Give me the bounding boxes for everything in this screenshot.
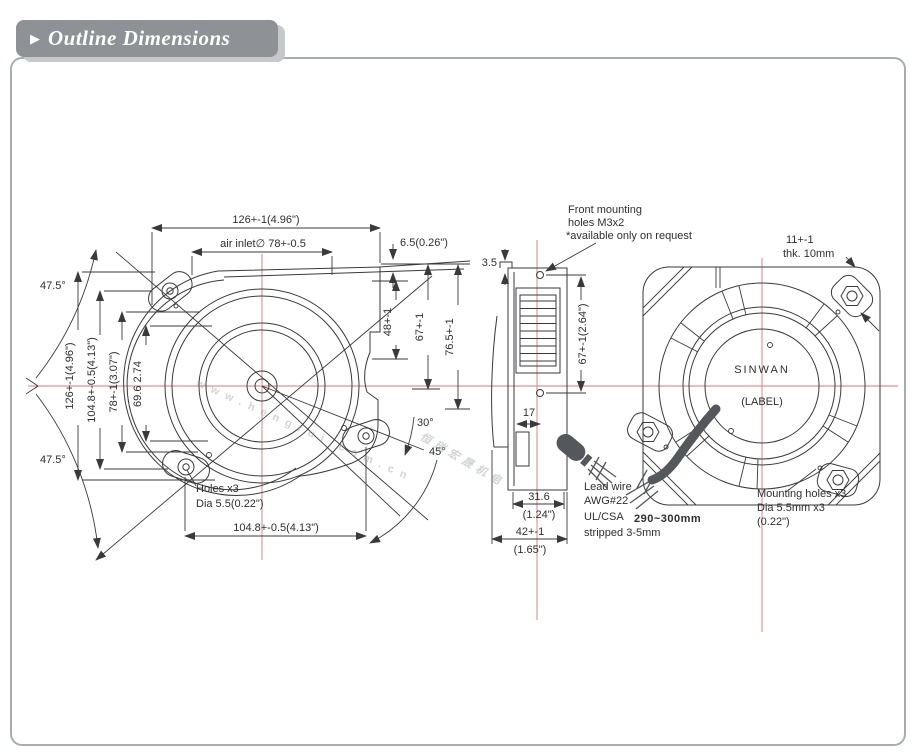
dim-outlet-in: (1.24") xyxy=(523,509,556,521)
note-lead-wire-length: 290~300mm xyxy=(634,513,701,525)
note-mount-2: Dia 5.5mm x3 xyxy=(757,502,825,514)
note-lead-wire-1: Lead wire xyxy=(584,481,632,493)
watermark-cn: 恒瑞宏晟机电 xyxy=(418,430,508,489)
dim-inlet-height: 78+-1(3.07") xyxy=(108,351,120,412)
note-lead-wire-3: UL/CSA xyxy=(584,511,624,523)
dim-height-left: 126+-1(4.96") xyxy=(64,342,76,409)
note-mount-1: Mounting holes x3 xyxy=(757,488,846,500)
note-holes-1: Holes x3 xyxy=(196,483,239,495)
dim-outlet-mm: 31.6 xyxy=(528,491,549,503)
dim-angle-top: 47.5° xyxy=(40,280,66,292)
label-label: (LABEL) xyxy=(741,396,783,408)
dim-67: 67+-1 xyxy=(414,313,426,341)
note-holes-2: Dia 5.5(0.22") xyxy=(196,498,264,510)
note-lead-wire-2: AWG#22 xyxy=(584,495,628,507)
note-front-holes-2: holes M3x2 xyxy=(568,217,624,229)
lead-wire-drawing: Lead wire AWG#22 UL/CSA 290~300mm stripp… xyxy=(553,409,716,539)
dim-outlet-lip: 6.5(0.26") xyxy=(400,237,448,249)
dim-3-5: 3.5 xyxy=(482,257,497,269)
dim-air-inlet: air inlet∅ 78+-0.5 xyxy=(220,238,306,250)
label-brand: SINWAN xyxy=(734,364,790,376)
datasheet-page: { "header": { "title": "Outline Dimensio… xyxy=(0,0,916,754)
dim-depth-in: (1.65") xyxy=(514,544,547,556)
dim-hole-pitch: 67+-1(2.64") xyxy=(577,303,589,364)
dim-flange-1: 11+-1 xyxy=(786,234,814,246)
note-front-holes-3: *available only on request xyxy=(566,230,692,242)
watermark: www.hengrui.com.cn 恒瑞宏晟机电 xyxy=(193,377,507,490)
note-front-holes-1: Front mounting xyxy=(568,204,642,216)
section-header: ▶ Outline Dimensions xyxy=(16,20,278,57)
dim-17: 17 xyxy=(523,407,535,419)
dim-angle-bottom: 47.5° xyxy=(40,454,66,466)
dim-69: 69.6 2.74 xyxy=(132,361,144,407)
side-view xyxy=(492,262,567,490)
dim-holes-height: 104.8+-0.5(4.13") xyxy=(86,337,98,423)
dim-48: 48+-1 xyxy=(382,308,394,336)
page-title: Outline Dimensions xyxy=(48,26,230,51)
note-mount-3: (0.22") xyxy=(757,516,790,528)
centerlines xyxy=(28,240,898,632)
dim-76: 76.5+-1 xyxy=(444,318,456,356)
arrow-icon: ▶ xyxy=(30,32,40,45)
dim-angle-30: 30° xyxy=(417,417,434,429)
technical-drawing: 126+-1(4.96") air inlet∅ 78+-0.5 6.5(0.2… xyxy=(0,0,916,754)
note-lead-wire-5: stripped 3-5mm xyxy=(584,527,660,539)
dim-width-top: 126+-1(4.96") xyxy=(232,214,299,226)
dim-width-bottom: 104.8+-0.5(4.13") xyxy=(233,522,319,534)
dim-depth-mm: 42+-1 xyxy=(516,526,544,538)
dim-flange-2: thk. 10mm xyxy=(783,248,834,260)
